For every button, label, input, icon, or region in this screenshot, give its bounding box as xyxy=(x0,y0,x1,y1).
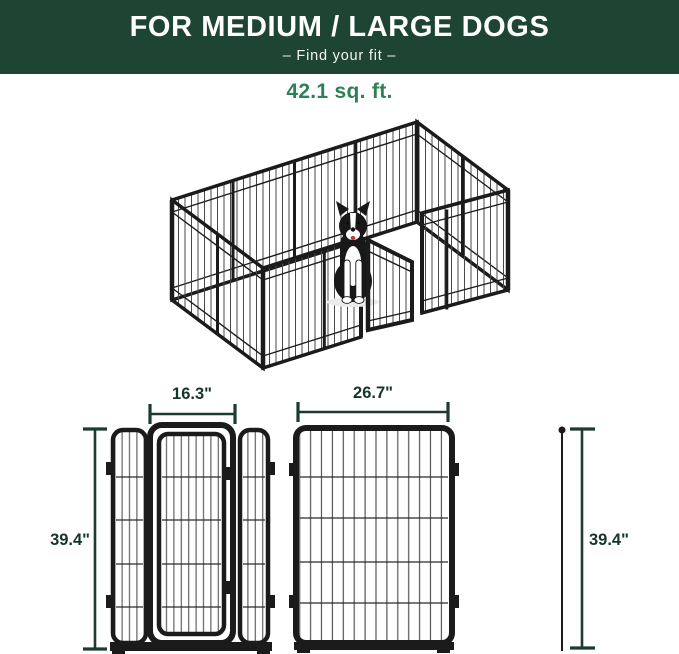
left-height-label: 39.4" xyxy=(50,531,90,549)
area-label: 42.1 sq. ft. xyxy=(286,80,392,104)
playpen-open-gate xyxy=(368,240,412,330)
connector-tab xyxy=(289,463,297,476)
connector-tab xyxy=(451,463,459,476)
door-panel-diagram xyxy=(106,425,275,654)
playpen-front-wall-right-segment xyxy=(422,190,508,313)
banner: FOR MEDIUM / LARGE DOGS – Find your fit … xyxy=(0,0,679,74)
playpen-3d-illustration xyxy=(0,110,679,385)
area-row: 42.1 sq. ft. xyxy=(0,74,679,110)
connector-tab xyxy=(451,595,459,608)
connector-tab xyxy=(289,595,297,608)
right-height-label: 39.4" xyxy=(589,531,629,549)
door-hinge-top xyxy=(224,467,234,480)
wide-width-dimension xyxy=(298,402,448,422)
base-bar xyxy=(110,642,272,651)
base-bar xyxy=(294,642,454,650)
panel-side-view xyxy=(559,427,566,652)
connector-tab xyxy=(267,462,275,475)
connector-tab xyxy=(106,462,114,475)
wide-panel-diagram xyxy=(289,428,459,653)
door-width-dimension xyxy=(150,404,235,424)
dimension-diagrams: 39.4" 16.3" xyxy=(0,385,679,654)
door-hinge-bottom xyxy=(224,581,234,594)
connector-tab xyxy=(267,595,275,608)
door-width-label: 16.3" xyxy=(172,385,212,403)
banner-subtitle: – Find your fit – xyxy=(283,48,397,64)
connector-tab xyxy=(106,595,114,608)
wide-width-label: 26.7" xyxy=(353,385,393,402)
banner-title: FOR MEDIUM / LARGE DOGS xyxy=(130,12,550,42)
door-leaf xyxy=(159,434,224,634)
